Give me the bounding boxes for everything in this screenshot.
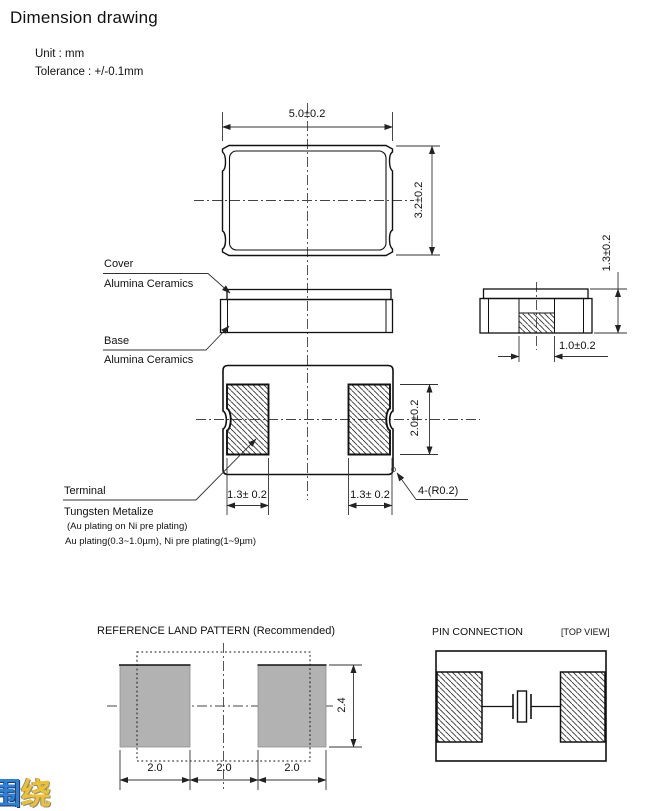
dim-land-height: 2.4 xyxy=(336,685,348,725)
dim-pad-height: 2.0±0.2 xyxy=(409,378,421,458)
side-view-cover xyxy=(227,290,391,300)
label-terminal: Terminal xyxy=(64,485,106,497)
dim-top-width: 5.0±0.2 xyxy=(267,108,347,120)
watermark-char-2: 绕 xyxy=(21,778,51,811)
tolerance-note: Tolerance : +/-0.1mm xyxy=(35,66,143,78)
bottom-view xyxy=(223,366,393,475)
label-cover-material: Alumina Ceramics xyxy=(104,278,193,290)
crystal-symbol xyxy=(513,691,531,722)
pin-connection-view-tag: [TOP VIEW] xyxy=(561,627,610,637)
label-base-material: Alumina Ceramics xyxy=(104,354,193,366)
dim-land-span-1: 2.0 xyxy=(135,762,175,774)
dimension-drawing-page: Dimension drawing Unit : mm Tolerance : … xyxy=(0,0,662,811)
pin-pad-right xyxy=(561,672,606,742)
drawing-geometry xyxy=(0,0,662,811)
label-cover: Cover xyxy=(104,258,133,270)
unit-note: Unit : mm xyxy=(35,48,84,60)
plating-note-1: (Au plating on Ni pre plating) xyxy=(67,521,187,532)
end-view-terminal-hatch xyxy=(519,313,555,333)
label-metalize: Tungsten Metalize xyxy=(64,506,153,518)
page-title: Dimension drawing xyxy=(10,8,158,28)
terminal-pad-left xyxy=(227,385,269,455)
plating-note-2: Au plating(0.3~1.0µm), Ni pre plating(1~… xyxy=(65,536,256,547)
side-view xyxy=(221,290,393,333)
dim-end-height: 1.3±0.2 xyxy=(601,213,613,293)
dim-land-span-2: 2.0 xyxy=(204,762,244,774)
watermark: 围绕 xyxy=(0,780,51,810)
dim-land-span-3: 2.0 xyxy=(272,762,312,774)
pin-pad-left xyxy=(437,672,482,742)
land-pattern-title: REFERENCE LAND PATTERN (Recommended) xyxy=(97,625,335,637)
end-view xyxy=(480,289,592,333)
top-view-dimensions xyxy=(223,112,441,255)
pin-connection-title: PIN CONNECTION xyxy=(432,626,523,638)
dim-pad-width-left: 1.3± 0.2 xyxy=(217,489,277,501)
land-pad-left xyxy=(120,665,190,747)
land-pattern xyxy=(119,652,327,761)
watermark-char-1: 围 xyxy=(0,778,21,811)
pin-connection-diagram xyxy=(436,651,606,761)
dim-end-terminal-width: 1.0±0.2 xyxy=(559,340,596,352)
side-view-base xyxy=(221,300,393,333)
dim-pad-width-right: 1.3± 0.2 xyxy=(340,489,400,501)
dim-top-height: 3.2±0.2 xyxy=(413,160,425,240)
terminal-pad-right xyxy=(349,385,391,455)
label-base: Base xyxy=(104,335,129,347)
end-view-cover xyxy=(484,289,589,299)
corner-radius-note: 4-(R0.2) xyxy=(418,485,458,497)
land-pad-right xyxy=(258,665,326,747)
